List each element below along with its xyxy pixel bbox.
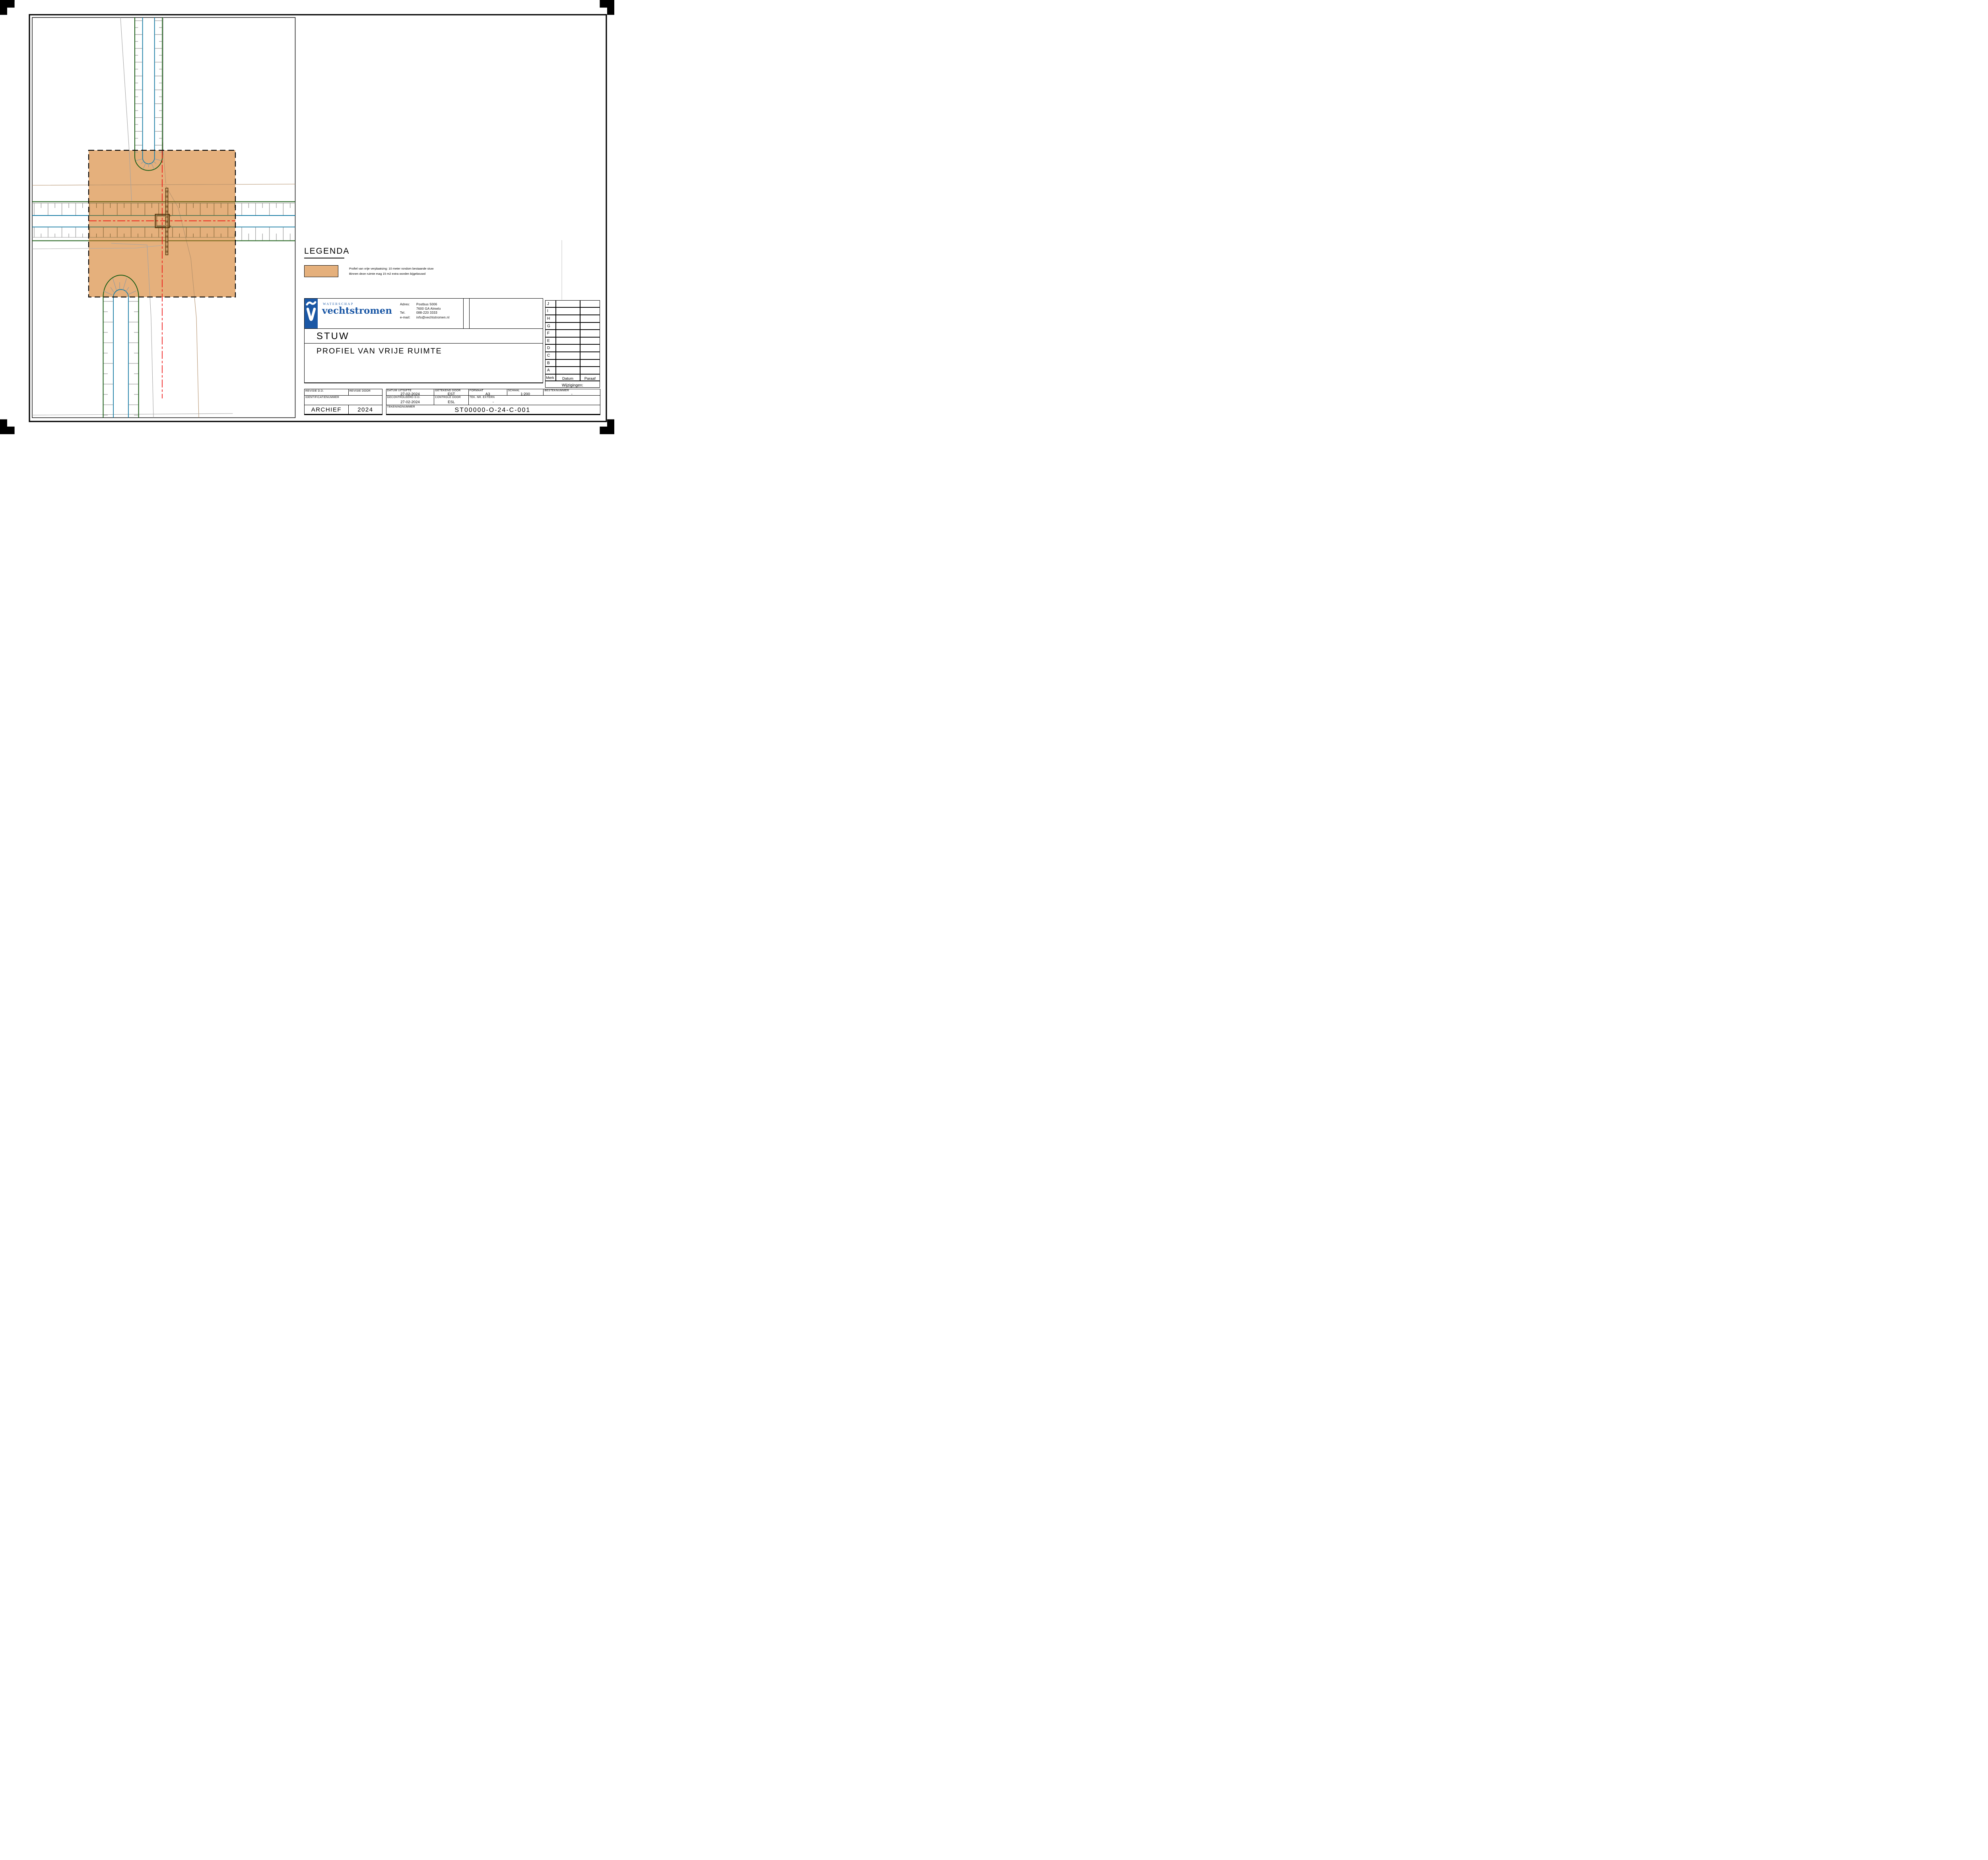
rev-row-merk-9: A bbox=[545, 367, 556, 374]
legend-title-underline bbox=[304, 258, 344, 258]
rev-row-merk-2: H bbox=[545, 315, 556, 322]
rev-row-paraaf-9 bbox=[580, 367, 600, 374]
drawing-title-row: PROFIEL VAN VRIJE RUIMTE bbox=[305, 344, 543, 383]
rev-row-paraaf-4 bbox=[580, 330, 600, 337]
adres-line2: 7600 GA Almelo bbox=[416, 307, 441, 311]
rev-row-datum-5 bbox=[556, 337, 580, 345]
gecontroleerd-dd-value: 27-02-2024 bbox=[386, 400, 434, 404]
rev-row-paraaf-2 bbox=[580, 315, 600, 322]
rev-row-datum-4 bbox=[556, 330, 580, 337]
vechtstromen-logo-icon bbox=[305, 299, 318, 328]
rev-letter: C bbox=[547, 353, 550, 358]
formaat-cell: FORMAAT A3 bbox=[468, 389, 507, 396]
rev-row-paraaf-1 bbox=[580, 307, 600, 315]
logo-blue-bar bbox=[305, 299, 318, 328]
rev-header-datum-label: Datum bbox=[562, 377, 573, 381]
rev-row-paraaf-6 bbox=[580, 344, 600, 352]
rev-row-datum-6 bbox=[556, 344, 580, 352]
rev-letter: I bbox=[547, 309, 548, 313]
tel-value: 088-220 3333 bbox=[416, 311, 437, 315]
controle-door-cell: CONTROLE DOOR ESL bbox=[434, 395, 469, 405]
rev-row-datum-7 bbox=[556, 352, 580, 359]
rev-header-merk-label: Merk bbox=[546, 376, 554, 380]
identificatienummer-cell: IDENTIFICATIENUMMER bbox=[304, 395, 382, 405]
object-title: STUW bbox=[316, 331, 349, 342]
rev-row-paraaf-7 bbox=[580, 352, 600, 359]
rev-row-datum-9 bbox=[556, 367, 580, 374]
rev-row-datum-3 bbox=[556, 322, 580, 330]
legend-line-1: Profiel van vrije verplaatsing: 10 meter… bbox=[349, 267, 433, 270]
logo-row: WATERSCHAP vechtstromen Adres: Postbus 5… bbox=[305, 299, 543, 329]
rev-row-merk-5: E bbox=[545, 337, 556, 345]
identificatienummer-label: IDENTIFICATIENUMMER bbox=[305, 396, 339, 399]
besteknummer-cell: BESTEKNUMMER - bbox=[543, 389, 600, 396]
rev-header-paraaf-label: Paraaf bbox=[584, 377, 596, 381]
rev-letter: H bbox=[547, 316, 550, 321]
tekeningnummer-label: TEKENINGNUMMER bbox=[387, 406, 415, 408]
drawing-sheet: { "legend": { "title": "LEGENDA", "swatc… bbox=[0, 0, 614, 434]
rev-row-paraaf-3 bbox=[580, 322, 600, 330]
object-title-row: STUW bbox=[305, 329, 543, 344]
rev-row-paraaf-0 bbox=[580, 300, 600, 308]
tel-label: Tel. bbox=[400, 311, 406, 315]
logo-row-divider-2 bbox=[469, 299, 470, 328]
tekeningnummer-value: ST00000-O-24-C-001 bbox=[455, 407, 531, 414]
legend-title: LEGENDA bbox=[304, 247, 349, 256]
logo-vechtstromen-text: vechtstromen bbox=[322, 305, 392, 316]
archief-jaar-value: 2024 bbox=[357, 406, 373, 413]
logo-row-divider-1 bbox=[463, 299, 464, 328]
legend-swatch bbox=[304, 265, 338, 277]
rev-header-datum: Datum bbox=[556, 374, 580, 381]
corner-mark-tl bbox=[0, 0, 15, 15]
rev-letter: F bbox=[547, 331, 549, 336]
rev-row-datum-8 bbox=[556, 359, 580, 367]
getekend-door-cell: GETEKEND DOOR EST bbox=[434, 389, 469, 396]
rev-row-merk-3: G bbox=[545, 322, 556, 330]
email-label: e-mail: bbox=[400, 316, 410, 319]
controle-door-value: ESL bbox=[434, 400, 468, 404]
revisie-door-cell: REVISIE DOOR bbox=[348, 389, 383, 396]
rev-row-merk-8: B bbox=[545, 359, 556, 367]
tek-nr-extern-value: - bbox=[493, 400, 494, 404]
adres-line1: Postbus 5006 bbox=[416, 303, 437, 306]
rev-row-datum-2 bbox=[556, 315, 580, 322]
rev-letter: E bbox=[547, 339, 550, 343]
rev-header-merk: Merk bbox=[545, 374, 556, 381]
revisie-dd-label: REVISIE D.D. bbox=[305, 390, 324, 392]
rev-row-merk-4: F bbox=[545, 330, 556, 337]
archief-cell: ARCHIEF bbox=[304, 405, 349, 415]
rev-row-merk-0: J bbox=[545, 300, 556, 308]
tek-nr-extern-cell: TEK. NR. EXTERN - bbox=[468, 395, 600, 405]
datum-uitgifte-cell: DATUM UITGIFTE 27-02-2024 bbox=[386, 389, 435, 396]
adres-label: Adres: bbox=[400, 303, 410, 306]
rev-row-merk-7: C bbox=[545, 352, 556, 359]
archief-jaar-cell: 2024 bbox=[348, 405, 383, 415]
rev-letter: B bbox=[547, 361, 550, 365]
rev-row-paraaf-8 bbox=[580, 359, 600, 367]
rev-letter: G bbox=[547, 324, 550, 328]
tek-nr-extern-label: TEK. NR. EXTERN bbox=[470, 396, 495, 399]
archief-value: ARCHIEF bbox=[311, 406, 342, 413]
gecontroleerd-dd-label: GECONTROLEERD D.D. bbox=[387, 396, 421, 399]
schaal-cell: SCHAAL 1:200 bbox=[507, 389, 544, 396]
rev-letter: A bbox=[547, 368, 550, 373]
rev-letter: D bbox=[547, 346, 550, 350]
revisie-dd-cell: REVISIE D.D. bbox=[304, 389, 349, 396]
title-block: WATERSCHAP vechtstromen Adres: Postbus 5… bbox=[304, 298, 543, 383]
rev-footer-label: Wijzigingen: bbox=[562, 383, 583, 388]
rev-row-merk-1: I bbox=[545, 307, 556, 315]
corner-mark-bl bbox=[0, 419, 15, 434]
tekeningnummer-cell: TEKENINGNUMMER ST00000-O-24-C-001 bbox=[386, 405, 601, 415]
upper-channel bbox=[135, 17, 163, 171]
email-value: info@vechtstromen.nl bbox=[416, 316, 450, 319]
rev-letter: J bbox=[547, 302, 549, 306]
rev-row-datum-1 bbox=[556, 307, 580, 315]
revisie-door-label: REVISIE DOOR bbox=[349, 390, 371, 392]
rev-row-datum-0 bbox=[556, 300, 580, 308]
gecontroleerd-dd-cell: GECONTROLEERD D.D. 27-02-2024 bbox=[386, 395, 435, 405]
rev-row-merk-6: D bbox=[545, 344, 556, 352]
drawing-title: PROFIEL VAN VRIJE RUIMTE bbox=[316, 347, 442, 356]
rev-footer: Wijzigingen: bbox=[545, 381, 600, 388]
corner-mark-tr bbox=[600, 0, 614, 15]
rev-row-paraaf-5 bbox=[580, 337, 600, 345]
controle-door-label: CONTROLE DOOR bbox=[435, 396, 461, 399]
legend-line-2: Binnen deze ruimte mag 15 m2 extra worde… bbox=[349, 272, 425, 276]
rev-header-paraaf: Paraaf bbox=[580, 374, 600, 381]
